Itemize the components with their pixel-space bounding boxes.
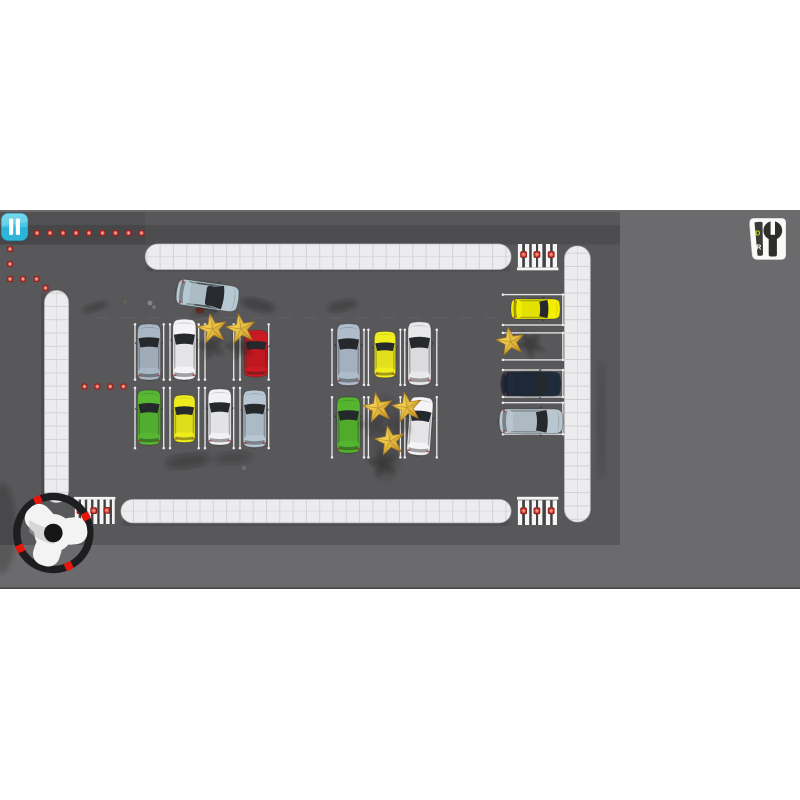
svg-text:D: D xyxy=(755,231,760,238)
svg-text:R: R xyxy=(756,245,761,252)
